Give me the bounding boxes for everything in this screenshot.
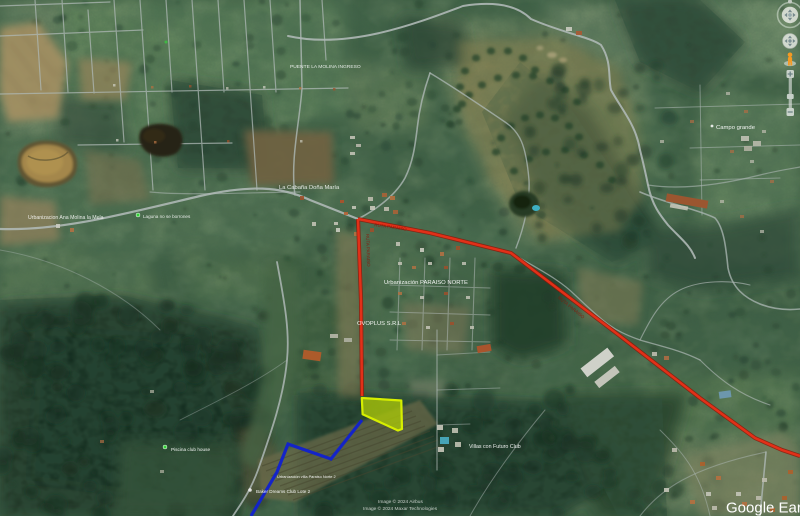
svg-text:Laguna no se borrones: Laguna no se borrones — [143, 214, 191, 219]
svg-text:La Cabaña Doña María: La Cabaña Doña María — [279, 185, 340, 191]
svg-text:PUENTE LA MOLINA INGRESO: PUENTE LA MOLINA INGRESO — [290, 64, 361, 70]
svg-text:Urbanización villa Paraiso Nor: Urbanización villa Paraiso Norte 2 — [277, 474, 336, 479]
svg-text:Villas con Futuro Club: Villas con Futuro Club — [469, 444, 521, 450]
svg-text:Image © 2024 Maxar Technologie: Image © 2024 Maxar Technologies — [363, 505, 438, 512]
svg-text:OVOPLUS S.R.L: OVOPLUS S.R.L — [357, 321, 402, 327]
svg-text:Urbanización PARAISO NORTE: Urbanización PARAISO NORTE — [384, 280, 468, 286]
svg-text:Piscina club house: Piscina club house — [171, 447, 210, 452]
svg-text:Urbanizacion Ana Molina la Mel: Urbanizacion Ana Molina la Mela — [28, 215, 104, 221]
svg-text:Google Earth: Google Earth — [726, 500, 800, 516]
svg-text:Campo grande: Campo grande — [716, 125, 756, 131]
svg-text:Baker Dreams Club Lote 2: Baker Dreams Club Lote 2 — [256, 489, 311, 494]
svg-text:Image © 2024 Airbus: Image © 2024 Airbus — [378, 498, 423, 505]
